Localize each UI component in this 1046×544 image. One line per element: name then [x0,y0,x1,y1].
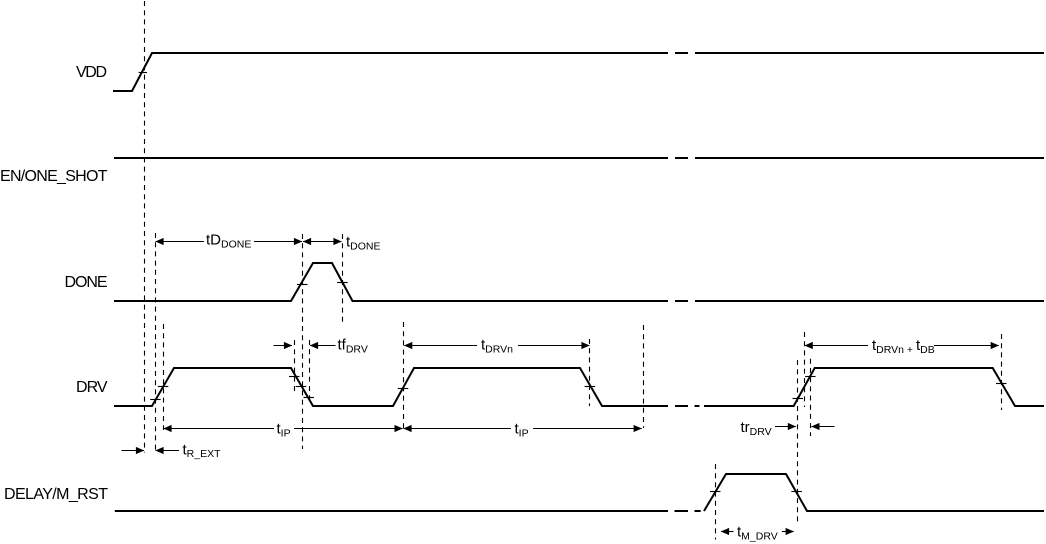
svg-text:VDD: VDD [76,64,107,81]
svg-text:DRV: DRV [76,379,108,396]
svg-text:DONE: DONE [65,274,108,291]
svg-text:EN/ONE_SHOT: EN/ONE_SHOT [0,168,108,185]
svg-text:DELAY/M_RST: DELAY/M_RST [4,486,108,503]
